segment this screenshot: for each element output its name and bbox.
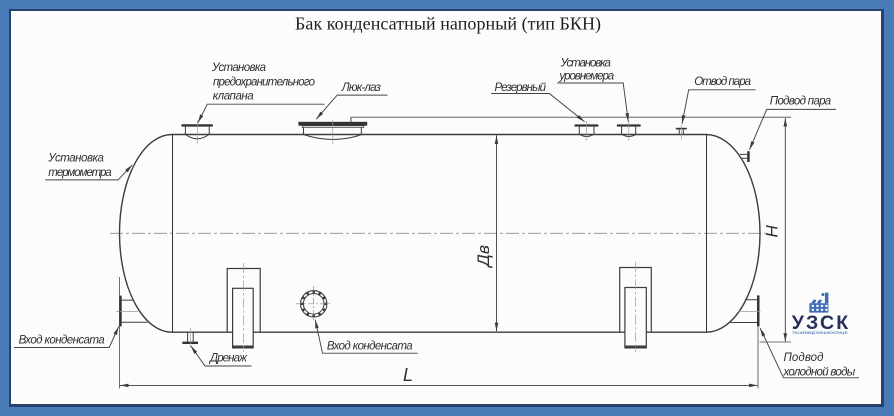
svg-text:L: L: [403, 365, 413, 385]
svg-text:ТУЛЬСКИЙ ЗАВОД СТАЛЬНЫХ КОНСТР: ТУЛЬСКИЙ ЗАВОД СТАЛЬНЫХ КОНСТРУКЦИЙ: [792, 331, 848, 335]
svg-text:Вход конденсата: Вход конденсата: [19, 335, 105, 347]
svg-text:Установка: Установка: [211, 62, 266, 74]
svg-text:холодной воды: холодной воды: [783, 367, 856, 379]
svg-text:Установка: Установка: [560, 57, 611, 69]
svg-text:Дв: Дв: [474, 245, 493, 269]
svg-text:уровнемера: уровнемера: [558, 71, 614, 83]
svg-text:Подвод: Подвод: [784, 352, 824, 364]
svg-text:Подвод пара: Подвод пара: [770, 96, 831, 108]
svg-text:Н: Н: [763, 225, 782, 238]
svg-text:Дренаж: Дренаж: [208, 353, 248, 365]
svg-text:Резервный: Резервный: [495, 82, 547, 94]
svg-text:Вход конденсата: Вход конденсата: [327, 340, 413, 352]
svg-text:клапана: клапана: [213, 90, 254, 102]
svg-text:Установка: Установка: [47, 153, 104, 165]
svg-text:Люк-лаз: Люк-лаз: [341, 82, 382, 94]
svg-text:предохранительного: предохранительного: [213, 76, 316, 88]
svg-text:термометра: термометра: [48, 167, 111, 179]
svg-text:Отвод пара: Отвод пара: [694, 76, 751, 88]
svg-text:Бак конденсатный напорный (тип: Бак конденсатный напорный (тип БКН): [295, 14, 601, 35]
